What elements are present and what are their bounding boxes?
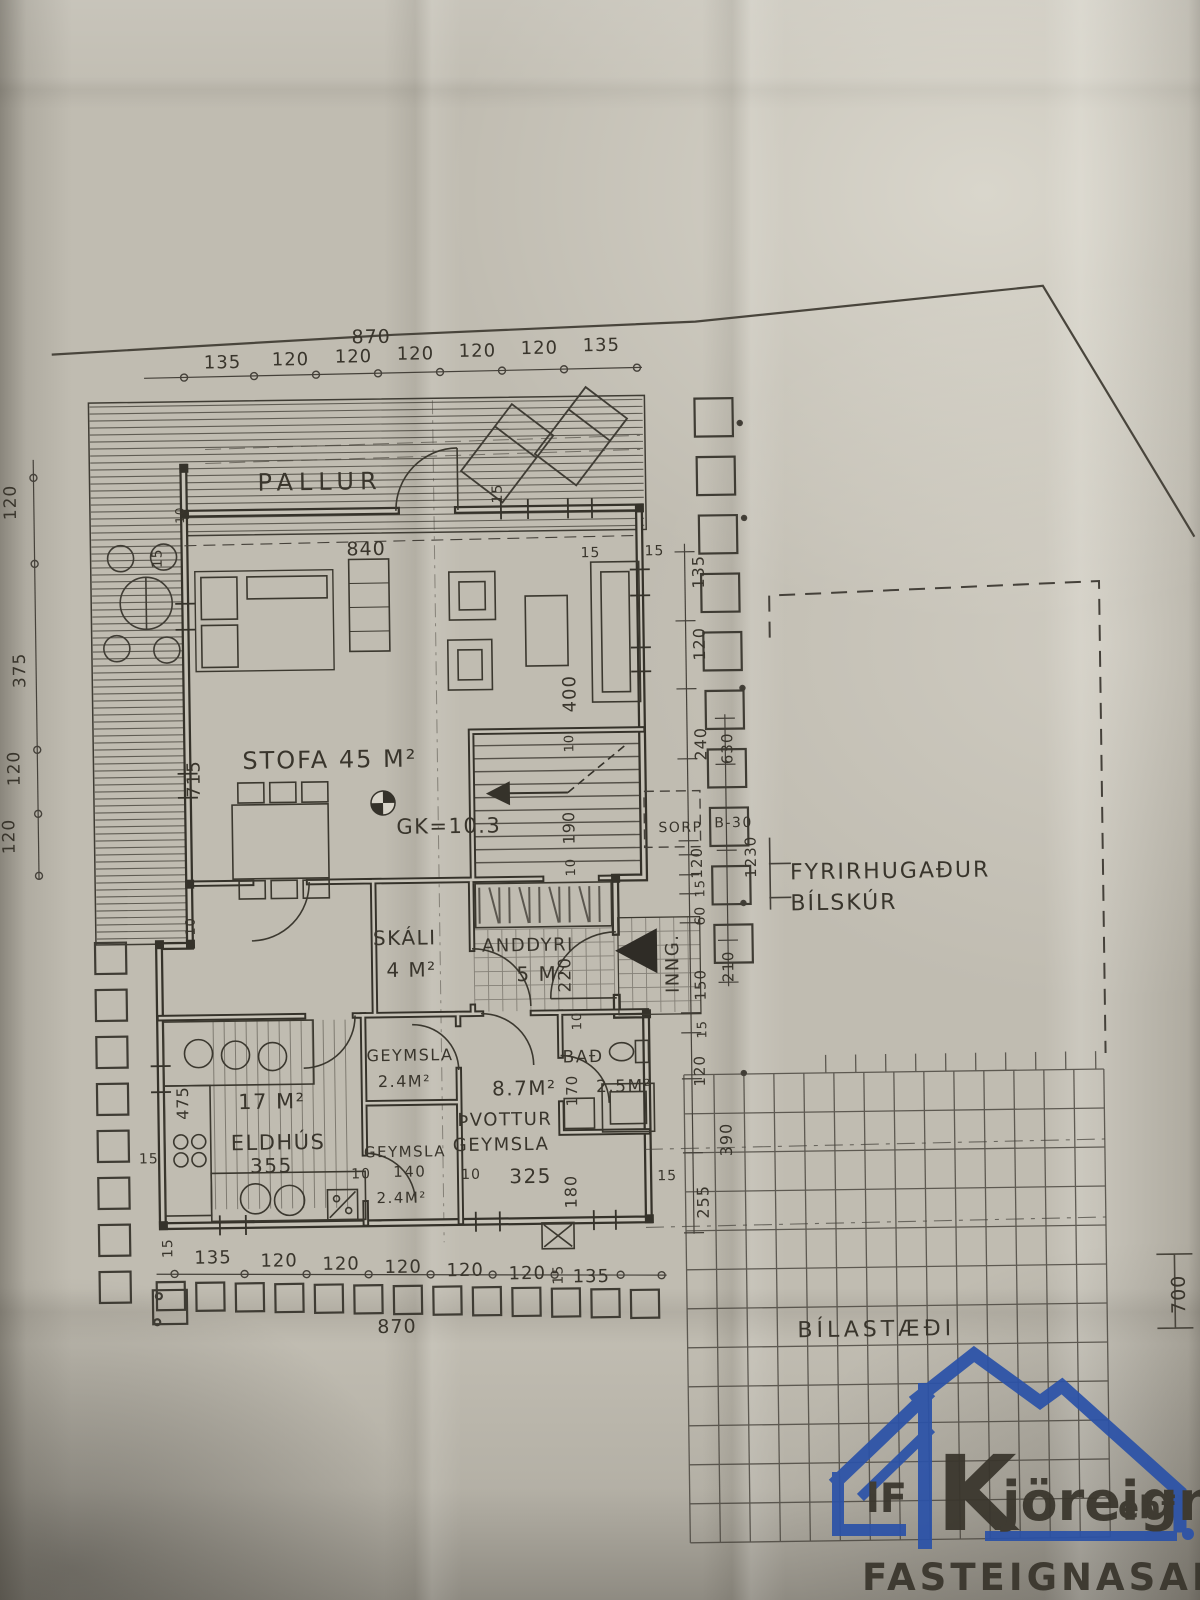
dim-label: 135 bbox=[194, 1247, 232, 1269]
dim-label: 10 bbox=[570, 1012, 585, 1031]
room-label: BAÐ bbox=[562, 1047, 603, 1068]
cabinet bbox=[349, 559, 390, 652]
dim-label: 700 bbox=[1168, 1275, 1191, 1315]
dim-label: 1230 bbox=[742, 836, 761, 878]
room-label: SORP bbox=[658, 820, 702, 837]
room-label: 355 bbox=[250, 1153, 293, 1178]
room-label: GK=10.3 bbox=[396, 813, 501, 838]
logo-subtitle: FASTEIGNASALA bbox=[862, 1556, 1200, 1599]
dim-label: 170 bbox=[563, 1075, 581, 1107]
dim-label: 120 bbox=[1, 485, 21, 521]
dim-label: 135 bbox=[204, 352, 242, 374]
floor-plan-drawing: PALLURSTOFA 45 M²GK=10.3SKÁLI4 M²ANDDYRI… bbox=[0, 0, 1200, 1600]
dim-label: 10 bbox=[351, 1166, 371, 1182]
room-label: ELDHÚS bbox=[231, 1129, 326, 1155]
dim-label: 120 bbox=[260, 1250, 298, 1272]
dim-label: 15 bbox=[693, 879, 708, 898]
room-label: SKÁLI bbox=[373, 925, 437, 950]
dim-label: 60 bbox=[692, 906, 708, 926]
toilet bbox=[609, 1043, 633, 1061]
dim-label: 15 bbox=[149, 548, 165, 568]
dim-label: 120 bbox=[397, 343, 435, 365]
gk-survey-marker bbox=[371, 791, 395, 815]
room-label: STOFA 45 M² bbox=[242, 745, 417, 775]
dim-label: 15 bbox=[490, 483, 506, 503]
entrance-arrow bbox=[615, 928, 658, 974]
dim-label: 870 bbox=[351, 326, 391, 349]
dim-label: 120 bbox=[0, 819, 20, 855]
room-label: B-30 bbox=[714, 815, 753, 832]
room-label: BÍLASTÆÐI bbox=[797, 1315, 955, 1343]
sofa-right bbox=[591, 561, 641, 702]
dim-label: 120 bbox=[4, 751, 24, 787]
dim-label: 135 bbox=[573, 1266, 611, 1288]
kitchen-sink bbox=[240, 1184, 270, 1214]
room-label: PALLUR bbox=[257, 467, 383, 497]
dim-label: 120 bbox=[521, 338, 559, 360]
room-label: ANDDYRI bbox=[482, 934, 574, 956]
dim-label: 10 bbox=[461, 1167, 481, 1183]
dim-label: 15 bbox=[550, 1265, 566, 1285]
deck-round-table-set bbox=[102, 544, 180, 664]
dim-label: 840 bbox=[346, 538, 386, 561]
dim-label: 135 bbox=[583, 335, 621, 357]
dim-label: 630 bbox=[718, 732, 736, 764]
logo-roof-left-outer bbox=[838, 1396, 926, 1480]
dim-line-840 bbox=[184, 535, 639, 545]
room-label: 2.4M² bbox=[376, 1188, 427, 1207]
wardrobe bbox=[475, 882, 612, 928]
dim-label: 15 bbox=[657, 1168, 677, 1184]
dim-label: 120 bbox=[322, 1253, 360, 1275]
room-label: 2.4M² bbox=[378, 1071, 431, 1091]
room-label: GEYMSLA bbox=[366, 1045, 453, 1065]
dim-label: 870 bbox=[377, 1316, 417, 1339]
dim-label: 120 bbox=[335, 346, 373, 368]
room-label: INNG. bbox=[662, 933, 684, 993]
room-label: 8.7M² bbox=[492, 1076, 557, 1101]
dim-label: 210 bbox=[719, 950, 737, 982]
dim-label: 255 bbox=[693, 1185, 712, 1219]
room-label: GEYMSLA bbox=[453, 1134, 550, 1156]
dim-label: 15 bbox=[644, 543, 664, 559]
armchair bbox=[449, 571, 496, 620]
dim-label: 135 bbox=[689, 555, 708, 589]
window-marks bbox=[143, 497, 659, 1236]
dim-label: 10 bbox=[562, 734, 577, 753]
dim-label: 120 bbox=[688, 847, 706, 879]
dim-label: 120 bbox=[459, 340, 497, 362]
dim-label: 220 bbox=[555, 957, 575, 993]
dim-label: 390 bbox=[717, 1123, 736, 1157]
dim-label: 15 bbox=[160, 1238, 176, 1258]
dim-label: 240 bbox=[691, 727, 710, 761]
dim-label: 15 bbox=[695, 1020, 710, 1039]
logo-prefix: lF bbox=[866, 1476, 907, 1522]
room-label: BÍLSKÚR bbox=[790, 889, 897, 916]
dim-label: 10 bbox=[173, 506, 187, 523]
kitchen-counter-bottom bbox=[211, 1171, 366, 1221]
dim-label: 715 bbox=[183, 760, 205, 798]
dim-label: 120 bbox=[691, 1055, 709, 1087]
sofa-group-left bbox=[195, 570, 334, 672]
room-label: 17 M² bbox=[238, 1089, 306, 1114]
dim-label: 120 bbox=[690, 627, 709, 661]
dim-label: 10 bbox=[564, 858, 579, 877]
dim-label: 475 bbox=[173, 1086, 192, 1120]
dim-label: 150 bbox=[691, 969, 709, 1001]
lot-boundary bbox=[51, 284, 1200, 1344]
dim-label: 180 bbox=[561, 1175, 580, 1209]
dim-label: 190 bbox=[559, 811, 578, 845]
coffee-table bbox=[525, 595, 568, 666]
dim-label: 15 bbox=[580, 545, 600, 561]
dim-label: 120 bbox=[508, 1263, 546, 1285]
dim-label: 120 bbox=[272, 349, 310, 371]
photo-of-blueprint: PALLURSTOFA 45 M²GK=10.3SKÁLI4 M²ANDDYRI… bbox=[0, 0, 1200, 1600]
room-label: 140 bbox=[393, 1162, 426, 1180]
room-label: ÞVOTTUR bbox=[457, 1109, 552, 1131]
room-label: 2.5M² bbox=[596, 1076, 652, 1097]
dim-label: 400 bbox=[559, 675, 581, 713]
realtor-logo: lF K jöreign ehf FASTEIGNASALA bbox=[838, 1354, 1200, 1599]
room-label: 325 bbox=[509, 1164, 552, 1189]
room-label: FYRIRHUGAÐUR bbox=[790, 858, 991, 886]
site-plan: PALLURSTOFA 45 M²GK=10.3SKÁLI4 M²ANDDYRI… bbox=[0, 284, 1200, 1553]
dim-label: 375 bbox=[10, 652, 30, 688]
dim-label: 10 bbox=[184, 917, 199, 936]
dim-label: 120 bbox=[384, 1257, 422, 1279]
logo-suffix: ehf bbox=[1118, 1490, 1175, 1526]
armchair bbox=[448, 639, 493, 690]
dim-label: 15 bbox=[139, 1151, 159, 1167]
room-label: GEYMSLA bbox=[364, 1142, 446, 1161]
dim-label: 120 bbox=[446, 1260, 484, 1282]
room-label: 4 M² bbox=[386, 957, 437, 982]
dining-table bbox=[232, 804, 329, 879]
proposed-garage-outline bbox=[769, 581, 1106, 1058]
